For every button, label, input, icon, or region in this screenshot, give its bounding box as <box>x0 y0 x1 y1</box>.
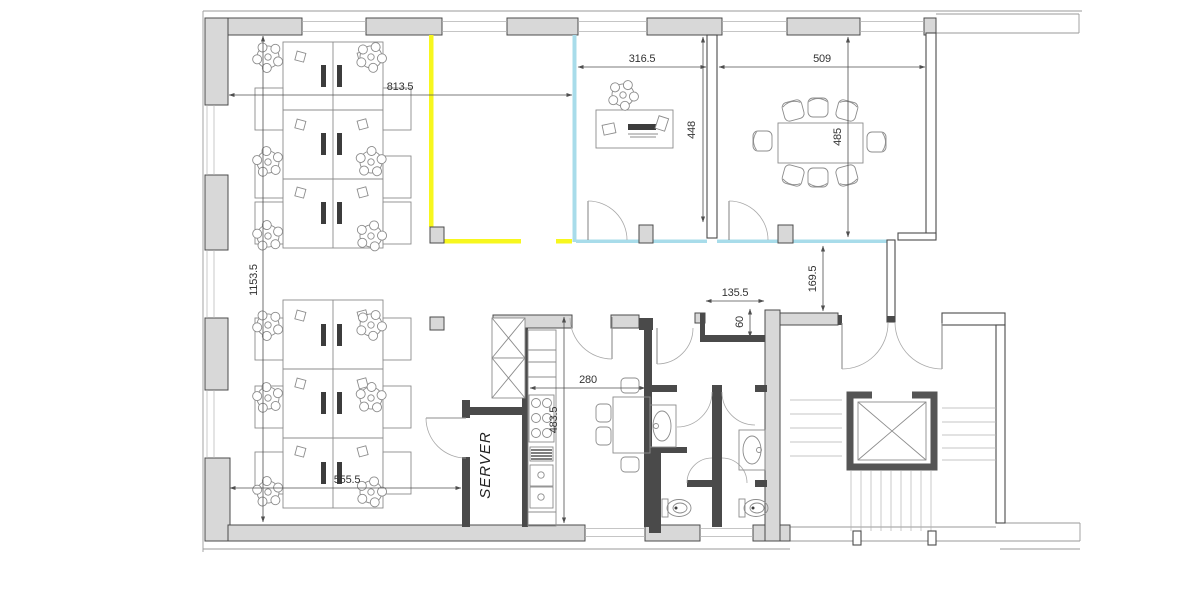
toilet-icon-right <box>739 499 768 517</box>
door-post <box>887 316 895 322</box>
dimension-meeting-room-width: 509 <box>719 53 925 67</box>
conference-chair <box>808 98 828 117</box>
office-chair <box>247 36 287 76</box>
side-table <box>383 318 411 360</box>
elevator-x-icon <box>858 402 926 460</box>
partition-office-meeting <box>707 35 717 238</box>
server-north-wall <box>462 407 524 415</box>
conference-table <box>778 123 863 163</box>
dim-label: 448 <box>686 121 698 139</box>
wc2-stall-door <box>722 392 755 425</box>
left-wall-pier <box>205 18 228 105</box>
window-top <box>442 22 507 32</box>
dimension-niche-depth: 60 <box>734 309 750 337</box>
window-bottom <box>700 529 753 537</box>
toilet-icon-left <box>662 499 691 517</box>
top-wall-pier <box>787 18 860 35</box>
wc-partition <box>712 385 722 527</box>
dim-label: 135.5 <box>722 287 749 299</box>
side-table <box>255 88 283 130</box>
conference-chair <box>808 168 828 187</box>
dim-label: 813.5 <box>387 81 414 93</box>
conference-chair <box>867 132 886 152</box>
dim-label: 509 <box>813 53 831 65</box>
conference-chair <box>753 131 772 151</box>
wc-stub-wall <box>661 447 687 453</box>
dining-chair <box>596 404 611 422</box>
side-table <box>383 202 411 244</box>
office-chair <box>606 79 641 113</box>
outline-top-right-wall <box>936 14 1079 33</box>
conference-chair <box>781 99 805 123</box>
top-wall-pier <box>366 18 442 35</box>
window-left <box>207 105 214 175</box>
window-bottom <box>585 529 645 537</box>
wc-stub-wall <box>755 480 767 487</box>
stair-post <box>853 531 861 545</box>
wc-stub-wall <box>755 385 767 392</box>
niche-wall <box>700 335 765 342</box>
dimension-corridor-width: 169.5 <box>807 246 823 311</box>
yellow-wall-vertical <box>429 35 434 227</box>
column <box>778 225 793 243</box>
left-wall-pier <box>205 175 228 250</box>
dimension-private-office-depth: 448 <box>686 37 703 222</box>
stair-hall-top-wall-right <box>942 313 1005 325</box>
window-top <box>302 22 366 32</box>
left-wall-pier <box>205 318 228 390</box>
dim-label: 483.5 <box>548 407 560 434</box>
server-room-door <box>426 418 466 458</box>
desk-phones <box>295 51 368 198</box>
private-office-door <box>588 201 627 240</box>
vent-hatch <box>530 447 553 461</box>
wc-stub-wall <box>687 480 712 487</box>
dim-label: 1153.5 <box>248 264 260 296</box>
stair-hall-top-wall <box>780 313 838 325</box>
wc-rooms <box>650 405 768 517</box>
cyan-wall-horizontal <box>576 240 639 244</box>
meeting-room-south-connector <box>898 233 936 240</box>
dimension-private-office-width: 316.5 <box>578 53 706 67</box>
left-wall-corner-pier <box>205 458 230 541</box>
column <box>430 227 444 243</box>
dim-label: 485 <box>832 128 844 146</box>
dim-label: 555.5 <box>334 474 361 486</box>
conference-chair <box>835 164 859 188</box>
monitor <box>628 124 656 130</box>
window-top <box>722 22 787 32</box>
wc1-stall-door <box>677 392 712 427</box>
corridor-east-wall <box>887 240 895 322</box>
workstation-cluster-bottom <box>247 300 411 513</box>
yellow-wall-horizontal <box>556 239 572 244</box>
window-left <box>207 390 214 458</box>
top-wall-pier <box>507 18 578 35</box>
cyan-wall-vertical <box>573 35 577 242</box>
dining-chair <box>621 457 639 472</box>
window-left <box>207 250 214 318</box>
wc1-inner-door <box>687 458 712 483</box>
monitors <box>321 324 342 484</box>
column <box>639 225 653 243</box>
stairwell-double-door <box>842 323 942 369</box>
wc-sink-left <box>650 405 676 447</box>
new-walls-yellow <box>429 35 572 244</box>
side-table <box>383 386 411 428</box>
side-table <box>383 156 411 198</box>
private-office <box>596 79 673 148</box>
column <box>639 318 653 330</box>
papers <box>602 123 616 135</box>
window-top <box>860 22 924 32</box>
stair-post <box>928 531 936 545</box>
yellow-wall-horizontal <box>443 239 521 244</box>
counter-shelves <box>528 350 556 377</box>
building-outline <box>203 11 1082 552</box>
wardrobe-cabinets <box>492 318 525 398</box>
meeting-room <box>753 98 886 187</box>
interior-partitions <box>462 33 936 533</box>
cyan-wall-horizontal <box>653 240 707 244</box>
window-top <box>578 22 647 32</box>
bottom-wall <box>228 525 585 541</box>
server-west-wall <box>462 457 470 527</box>
wc1-entry-door <box>657 328 693 364</box>
top-wall-pier <box>647 18 722 35</box>
door-jamb <box>838 315 842 325</box>
wc2-inner-door <box>722 458 747 483</box>
monitors <box>321 65 342 224</box>
outline-stair-bottom <box>790 527 996 541</box>
floor-plan-drawing: 813.5 1153.5 555.5 316.5 509 448 485 16 <box>0 0 1200 600</box>
stairwell-east-wall <box>996 325 1005 523</box>
dim-label: 169.5 <box>807 266 819 293</box>
kitchen-sink <box>530 465 553 508</box>
column <box>430 317 444 330</box>
cyan-wall-horizontal <box>717 240 778 244</box>
outline-bottom-right <box>996 523 1080 549</box>
dim-label: 280 <box>579 374 597 386</box>
desk-phone <box>655 116 669 131</box>
cyan-wall-horizontal <box>793 240 887 244</box>
wc-shaft <box>649 447 661 533</box>
dim-label: 316.5 <box>629 53 656 65</box>
dining-chair <box>596 427 611 445</box>
server-room-label: SERVER <box>477 431 494 498</box>
floor-plan-canvas: 813.5 1153.5 555.5 316.5 509 448 485 16 <box>0 0 1200 600</box>
stairwell-west-wall <box>765 310 780 541</box>
meeting-room-east-wall <box>926 33 936 238</box>
elevator <box>850 395 934 467</box>
keyboard <box>628 134 658 137</box>
kitchen-north-wall <box>611 315 639 328</box>
meeting-room-door <box>729 201 768 240</box>
wc-stub-wall <box>649 385 677 392</box>
conference-chair <box>835 99 859 123</box>
dining-set <box>596 378 650 472</box>
dimension-niche-width: 135.5 <box>706 287 764 301</box>
wc-sink-right <box>739 430 765 470</box>
kitchen-door <box>570 317 612 359</box>
stairwell <box>790 395 996 545</box>
dim-label: 60 <box>734 316 746 328</box>
workstation-cluster-top <box>247 36 411 257</box>
dining-chair <box>621 378 639 393</box>
side-table <box>383 88 411 130</box>
conference-chair <box>781 164 805 188</box>
